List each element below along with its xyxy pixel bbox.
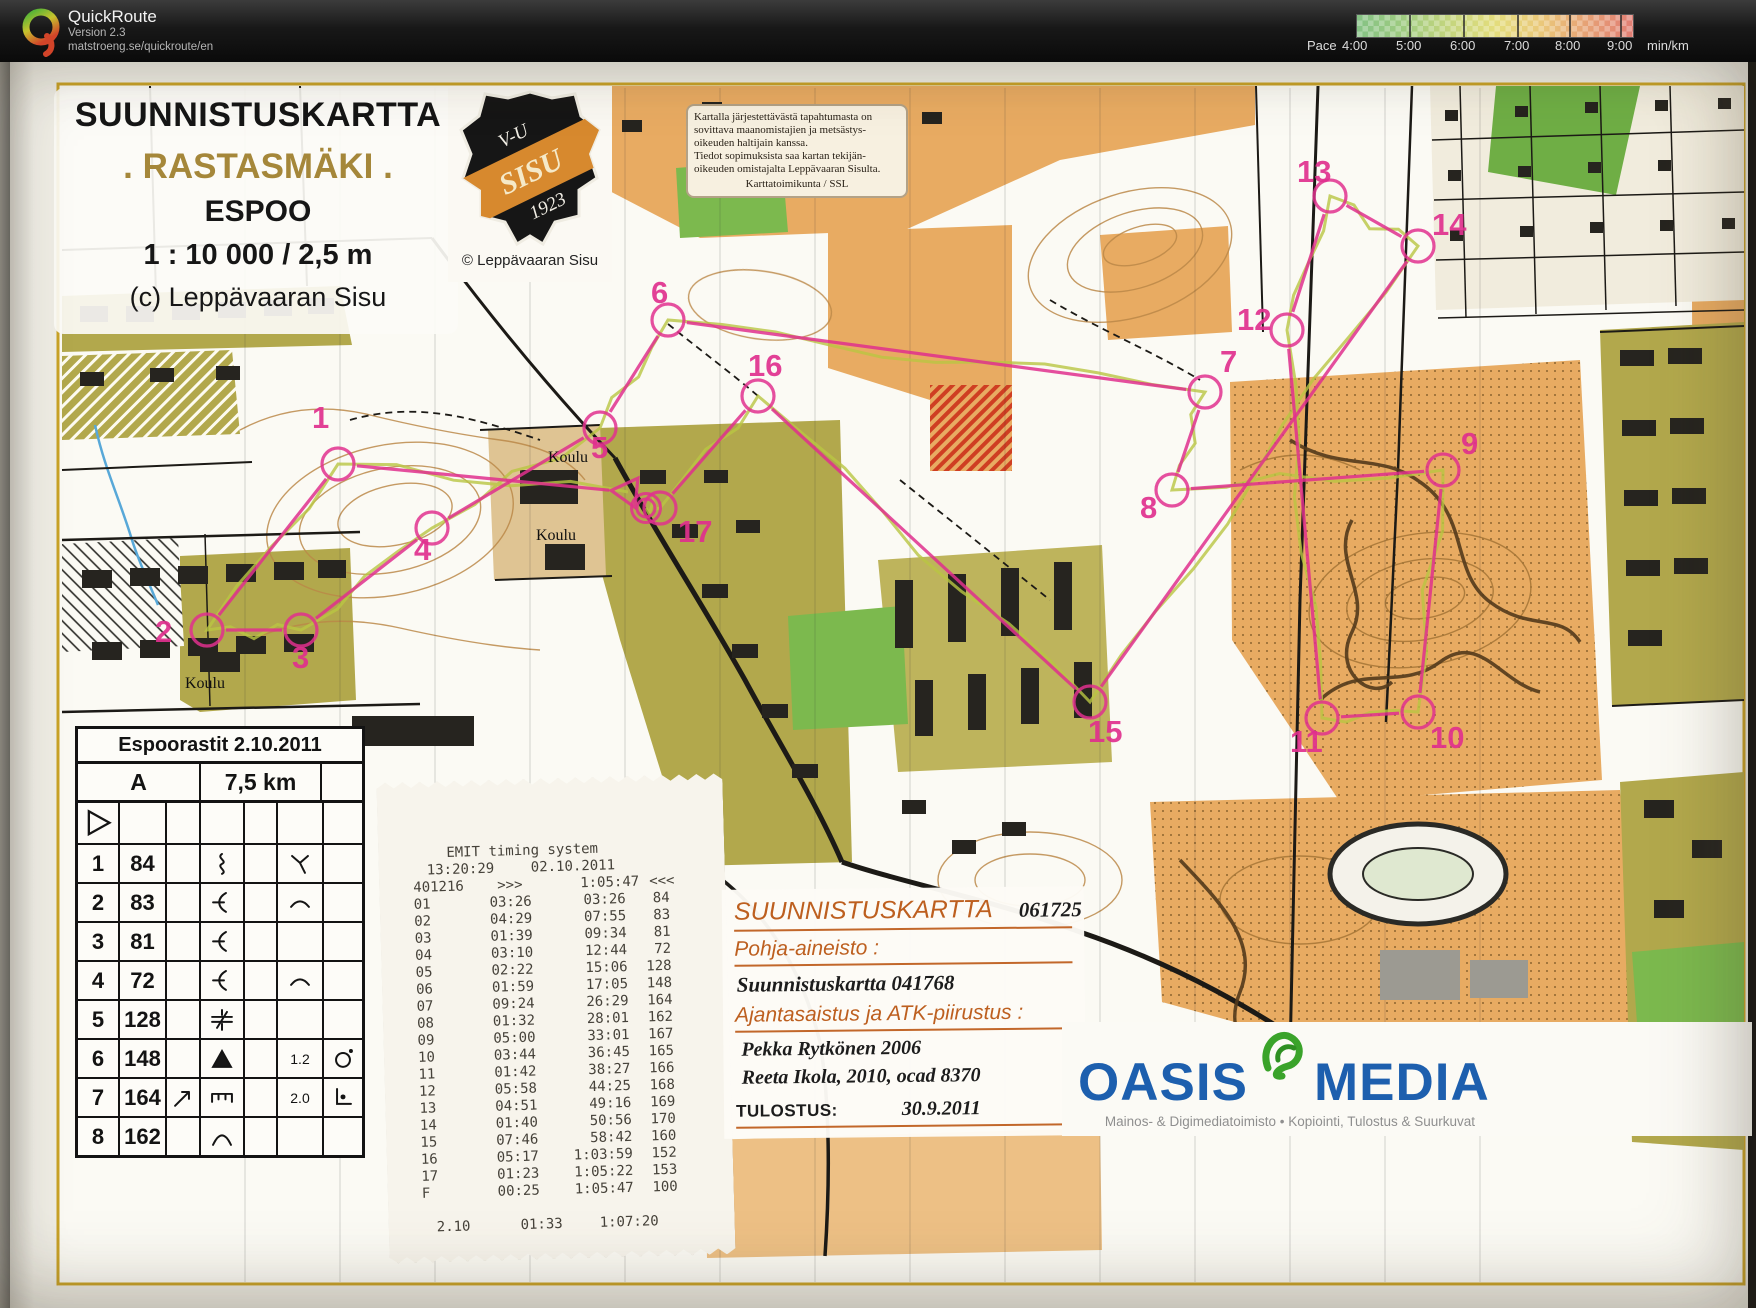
- control-cell: 162: [118, 1118, 165, 1155]
- control-cell: 72: [118, 962, 165, 999]
- control-number: 8: [1140, 490, 1157, 525]
- disclaimer-line: Karttatoimikunta / SSL: [694, 178, 900, 191]
- pace-tick-label: 7:00: [1504, 38, 1529, 53]
- map-scale: 1 : 10 000 / 2,5 m: [62, 239, 454, 272]
- event-title: Espoorastit 2.10.2011: [78, 729, 362, 764]
- control-cell: [199, 1118, 243, 1155]
- control-cell: [165, 884, 199, 921]
- split-code: 128: [627, 958, 671, 976]
- oasis-leaf-icon: [1256, 1024, 1314, 1082]
- arrow-ne-symbol-icon: [170, 1086, 196, 1110]
- control-cell: [165, 1001, 199, 1038]
- club-badge-card: V-U SISU 1923 © Leppävaaran Sisu: [448, 86, 612, 282]
- control-cell: [199, 884, 243, 921]
- split-code: 160: [632, 1128, 676, 1146]
- control-row: 61481.2: [78, 1040, 362, 1079]
- control-number: 1: [312, 400, 329, 435]
- control-cell: [199, 923, 243, 960]
- split-split: 03:10: [455, 945, 533, 964]
- control-cell: [165, 1040, 199, 1077]
- control-row: 472: [78, 962, 362, 1001]
- split-leg: 16: [421, 1151, 461, 1169]
- info-serial: 061725: [1019, 897, 1082, 923]
- control-cell: [276, 923, 322, 960]
- control-number: 4: [414, 532, 432, 567]
- control-number: 10: [1430, 720, 1464, 755]
- split-split: 05:58: [459, 1081, 537, 1100]
- control-number: 15: [1088, 714, 1122, 749]
- split-leg: 12: [419, 1083, 459, 1101]
- split-leg: 13: [419, 1100, 459, 1118]
- control-cell: [165, 1118, 199, 1155]
- control-cell: 3: [78, 923, 118, 960]
- split-split: 01:59: [456, 979, 534, 998]
- split-cum: 1:05:47: [540, 1180, 634, 1200]
- control-number: 17: [678, 514, 712, 549]
- control-cell: [276, 845, 322, 882]
- split-code: 167: [629, 1026, 673, 1044]
- emit-split-receipt: EMIT timing system 13:20:2902.10.2011 40…: [376, 773, 735, 1263]
- control-number: 12: [1237, 302, 1271, 337]
- control-cell: [165, 845, 199, 882]
- print-date: 30.9.2011: [902, 1097, 981, 1121]
- junction-y-symbol-icon: [287, 852, 313, 876]
- oasis-tagline: Mainos- & Digimediatoimisto • Kopiointi,…: [1078, 1114, 1502, 1129]
- author-2: Reeta Ikola, 2010, ocad 8370: [742, 1063, 1074, 1089]
- split-code: 72: [627, 941, 671, 959]
- arc-symbol-icon: [287, 891, 313, 915]
- map-info-box: SUUNNISTUSKARTTA 061725 Pohja-aineisto :…: [722, 886, 1087, 1139]
- control-cell: [243, 1040, 276, 1077]
- control-cell: [243, 1001, 276, 1038]
- reentrant-symbol-icon: [209, 969, 235, 993]
- pace-tick-label: 4:00: [1342, 38, 1367, 53]
- map-title: SUUNNISTUSKARTTA: [62, 96, 454, 135]
- disclaimer-line: oikeuden haltijain kanssa.: [694, 137, 900, 150]
- control-cell: 4: [78, 962, 118, 999]
- control-cell: [165, 1079, 199, 1116]
- control-cell: [276, 803, 322, 843]
- control-number: 13: [1297, 154, 1331, 189]
- update-label: Ajantasaistus ja ATK-piirustus :: [735, 1000, 1073, 1028]
- quickroute-logo-icon: [18, 5, 64, 57]
- oasis-wordmark-1: OASIS: [1078, 1053, 1248, 1112]
- split-leg: 11: [418, 1066, 458, 1084]
- knoll-symbol-icon: [209, 1125, 235, 1149]
- reentrant-symbol-icon: [209, 891, 235, 915]
- start-row: [78, 803, 362, 845]
- author-1: Pekka Rytkönen 2006: [741, 1035, 1073, 1061]
- club-badge: V-U SISU 1923: [455, 86, 605, 252]
- pace-tick-label: 6:00: [1450, 38, 1475, 53]
- out-of-bounds-area: [930, 385, 1012, 471]
- split-leg: 08: [417, 1015, 457, 1033]
- control-cell: [322, 1118, 362, 1155]
- control-row: 283: [78, 884, 362, 923]
- course-length: 7,5 km: [199, 764, 320, 800]
- pace-tick: [1620, 15, 1622, 37]
- circle-dot-symbol-icon: [330, 1047, 356, 1071]
- control-cell: 7: [78, 1079, 118, 1116]
- control-number: 7: [1220, 344, 1237, 379]
- control-cell: [322, 1040, 362, 1077]
- pace-tick: [1409, 15, 1411, 37]
- base-material-value: Suunnistuskartta 041768: [737, 969, 1073, 998]
- split-code: 164: [628, 992, 672, 1010]
- control-number: 2: [155, 614, 172, 649]
- control-cell: [276, 962, 322, 999]
- split-code: 162: [629, 1009, 673, 1027]
- total-time: 1:05:47: [563, 874, 639, 893]
- split-leg: F: [422, 1185, 462, 1203]
- control-cell: 6: [78, 1040, 118, 1077]
- split-leg: 10: [418, 1049, 458, 1067]
- control-row: 71642.0: [78, 1079, 362, 1118]
- control-cell: [243, 803, 276, 843]
- control-cell: 128: [118, 1001, 165, 1038]
- control-cell: [243, 884, 276, 921]
- split-code: 83: [626, 907, 670, 925]
- control-cell: [199, 1040, 243, 1077]
- control-number: 9: [1461, 426, 1478, 461]
- reentrant-symbol-icon: [209, 930, 235, 954]
- control-number: 14: [1432, 207, 1467, 242]
- badge-caption: © Leppävaaran Sisu: [450, 252, 610, 269]
- printer-logo-box: OASISMEDIA Mainos- & Digimediatoimisto •…: [1062, 1022, 1752, 1136]
- map-disclaimer: Kartalla järjestettävästä tapahtumasta o…: [686, 104, 908, 198]
- control-cell: 8: [78, 1118, 118, 1155]
- app-name: QuickRoute: [68, 7, 157, 27]
- control-cell: 81: [118, 923, 165, 960]
- split-code: 166: [630, 1060, 674, 1078]
- split-leg: 06: [416, 981, 456, 999]
- arrows-in: <<<: [649, 873, 675, 891]
- split-split: 04:29: [454, 911, 532, 930]
- pace-tick: [1569, 15, 1571, 37]
- control-cell: [322, 962, 362, 999]
- control-cell: 164: [118, 1079, 165, 1116]
- split-split: 03:44: [458, 1047, 536, 1066]
- pace-gradient-bar: [1356, 14, 1634, 38]
- split-split: 03:26: [454, 894, 532, 913]
- control-number: 3: [292, 640, 309, 675]
- split-code: 148: [628, 975, 672, 993]
- split-leg: 15: [420, 1134, 460, 1152]
- split-split: 01:42: [458, 1064, 536, 1083]
- control-row: 8162: [78, 1118, 362, 1155]
- control-cell: 1.2: [276, 1040, 322, 1077]
- pace-tick: [1517, 15, 1519, 37]
- course-name: A: [78, 764, 199, 800]
- split-code: 152: [633, 1145, 677, 1163]
- control-cell: [199, 962, 243, 999]
- control-cell: [199, 845, 243, 882]
- control-cell: [243, 1118, 276, 1155]
- control-cell: [165, 803, 199, 843]
- split-split: 01:32: [457, 1013, 535, 1032]
- pace-tick: [1463, 15, 1465, 37]
- disclaimer-line: Tiedot sopimuksista saa kartan tekijän-: [694, 150, 900, 163]
- app-url: matstroeng.se/quickroute/en: [68, 41, 213, 53]
- pace-unit: min/km: [1647, 38, 1689, 53]
- split-leg: 03: [414, 930, 454, 948]
- map-name: . RASTASMÄKI .: [62, 147, 454, 187]
- control-row: 5128: [78, 1001, 362, 1040]
- split-code: 100: [634, 1179, 678, 1197]
- wall-symbol-icon: [209, 1086, 235, 1110]
- disclaimer-line: sovittava maanomistajien ja metsästys-: [694, 124, 900, 137]
- split-split: 07:46: [460, 1132, 538, 1151]
- split-code: 153: [633, 1162, 677, 1180]
- crossing-symbol-icon: [209, 1008, 235, 1032]
- control-cell: [199, 1079, 243, 1116]
- arc-symbol-icon: [287, 969, 313, 993]
- quickroute-window: 1234567891011121314151617 KouluKouluKoul…: [0, 0, 1756, 1308]
- control-cell: [165, 962, 199, 999]
- info-title: SUUNNISTUSKARTTA: [734, 895, 993, 927]
- disclaimer-line: oikeuden omistajalta Leppävaaran Sisulta…: [694, 163, 900, 176]
- control-cell: 2: [78, 884, 118, 921]
- map-copyright: (c) Leppävaaran Sisu: [62, 282, 454, 313]
- divider: [736, 1123, 1074, 1129]
- gully-symbol-icon: [209, 852, 235, 876]
- split-leg: 07: [416, 998, 456, 1016]
- arrows-out: >>>: [497, 876, 563, 895]
- split-code: 84: [625, 890, 669, 908]
- control-number: 5: [591, 430, 608, 465]
- receipt-date: 02.10.2011: [531, 857, 616, 875]
- control-cell: 83: [118, 884, 165, 921]
- summary-total: 1:07:20: [563, 1213, 659, 1233]
- map-city: ESPOO: [62, 195, 454, 229]
- base-material-label: Pohja-aineisto :: [734, 934, 1072, 962]
- pace-tick-label: 9:00: [1607, 38, 1632, 53]
- control-cell: [322, 845, 362, 882]
- control-cell: 84: [118, 845, 165, 882]
- control-number: 6: [651, 275, 668, 310]
- control-cell: [243, 962, 276, 999]
- split-leg: 17: [421, 1168, 461, 1186]
- map-title-block: SUUNNISTUSKARTTA . RASTASMÄKI . ESPOO 1 …: [62, 96, 454, 313]
- koulu-label: Koulu: [548, 449, 588, 466]
- control-cell: [243, 1079, 276, 1116]
- pace-label: Pace: [1307, 38, 1337, 53]
- control-cell: [276, 884, 322, 921]
- control-cell: [322, 923, 362, 960]
- divider: [735, 1027, 1073, 1033]
- app-version: Version 2.3: [68, 27, 126, 39]
- receipt-summary: 2.1001:331:07:20: [423, 1211, 735, 1237]
- control-cell: [118, 803, 165, 843]
- pace-tick-label: 5:00: [1396, 38, 1421, 53]
- summary-split: 01:33: [499, 1216, 563, 1235]
- control-cell: [78, 803, 118, 843]
- control-cell: 5: [78, 1001, 118, 1038]
- split-code: 168: [631, 1077, 675, 1095]
- split-split: 04:51: [459, 1098, 537, 1117]
- control-cell: [199, 1001, 243, 1038]
- course-header: A 7,5 km: [78, 764, 362, 803]
- control-cell: [322, 803, 362, 843]
- control-cell: [276, 1001, 322, 1038]
- control-cell: 148: [118, 1040, 165, 1077]
- print-label: TULOSTUS:: [736, 1101, 838, 1122]
- control-description-card: Espoorastit 2.10.2011 A 7,5 km 184283381…: [75, 726, 365, 1158]
- control-row: 381: [78, 923, 362, 962]
- start-symbol-icon: [83, 809, 113, 837]
- control-rows: 184283381472512861481.271642.08162: [78, 803, 362, 1155]
- split-split: 05:17: [461, 1149, 539, 1168]
- receipt-splits: 0103:2603:26840204:2907:55830301:3909:34…: [414, 888, 734, 1203]
- split-leg: 02: [414, 913, 454, 931]
- split-leg: 04: [415, 947, 455, 965]
- koulu-label: Koulu: [536, 527, 576, 544]
- split-leg: 09: [417, 1032, 457, 1050]
- control-cell: [199, 803, 243, 843]
- disclaimer-line: Kartalla järjestettävästä tapahtumasta o…: [694, 111, 900, 124]
- control-cell: [322, 1079, 362, 1116]
- koulu-label: Koulu: [185, 675, 225, 692]
- split-code: 165: [630, 1043, 674, 1061]
- boulder-symbol-icon: [209, 1047, 235, 1071]
- control-cell: [276, 1118, 322, 1155]
- split-leg: 01: [414, 896, 454, 914]
- control-cell: [243, 923, 276, 960]
- control-cell: [243, 845, 276, 882]
- control-number: 11: [1290, 724, 1323, 759]
- corner-dot-symbol-icon: [330, 1086, 356, 1110]
- split-leg: 05: [415, 964, 455, 982]
- control-number: 16: [748, 348, 782, 383]
- split-split: 00:25: [462, 1183, 540, 1202]
- split-split: 05:00: [457, 1030, 535, 1049]
- control-cell: [165, 923, 199, 960]
- split-leg: 14: [420, 1117, 460, 1135]
- split-split: 02:22: [455, 962, 533, 981]
- split-code: 81: [626, 924, 670, 942]
- control-row: 184: [78, 845, 362, 884]
- summary-date: 2.10: [423, 1218, 499, 1237]
- split-split: 01:39: [454, 928, 532, 947]
- control-cell: 1: [78, 845, 118, 882]
- divider: [734, 926, 1072, 932]
- app-header: QuickRoute Version 2.3 matstroeng.se/qui…: [0, 0, 1756, 62]
- control-cell: [322, 1001, 362, 1038]
- split-code: 169: [631, 1094, 675, 1112]
- split-split: 01:23: [461, 1166, 539, 1185]
- control-cell: 2.0: [276, 1079, 322, 1116]
- control-cell: [322, 884, 362, 921]
- course-header-spare: [320, 764, 362, 800]
- pace-tick-label: 8:00: [1555, 38, 1580, 53]
- divider: [734, 961, 1072, 967]
- split-code: 170: [632, 1111, 676, 1129]
- oasis-wordmark-2: MEDIA: [1314, 1053, 1490, 1112]
